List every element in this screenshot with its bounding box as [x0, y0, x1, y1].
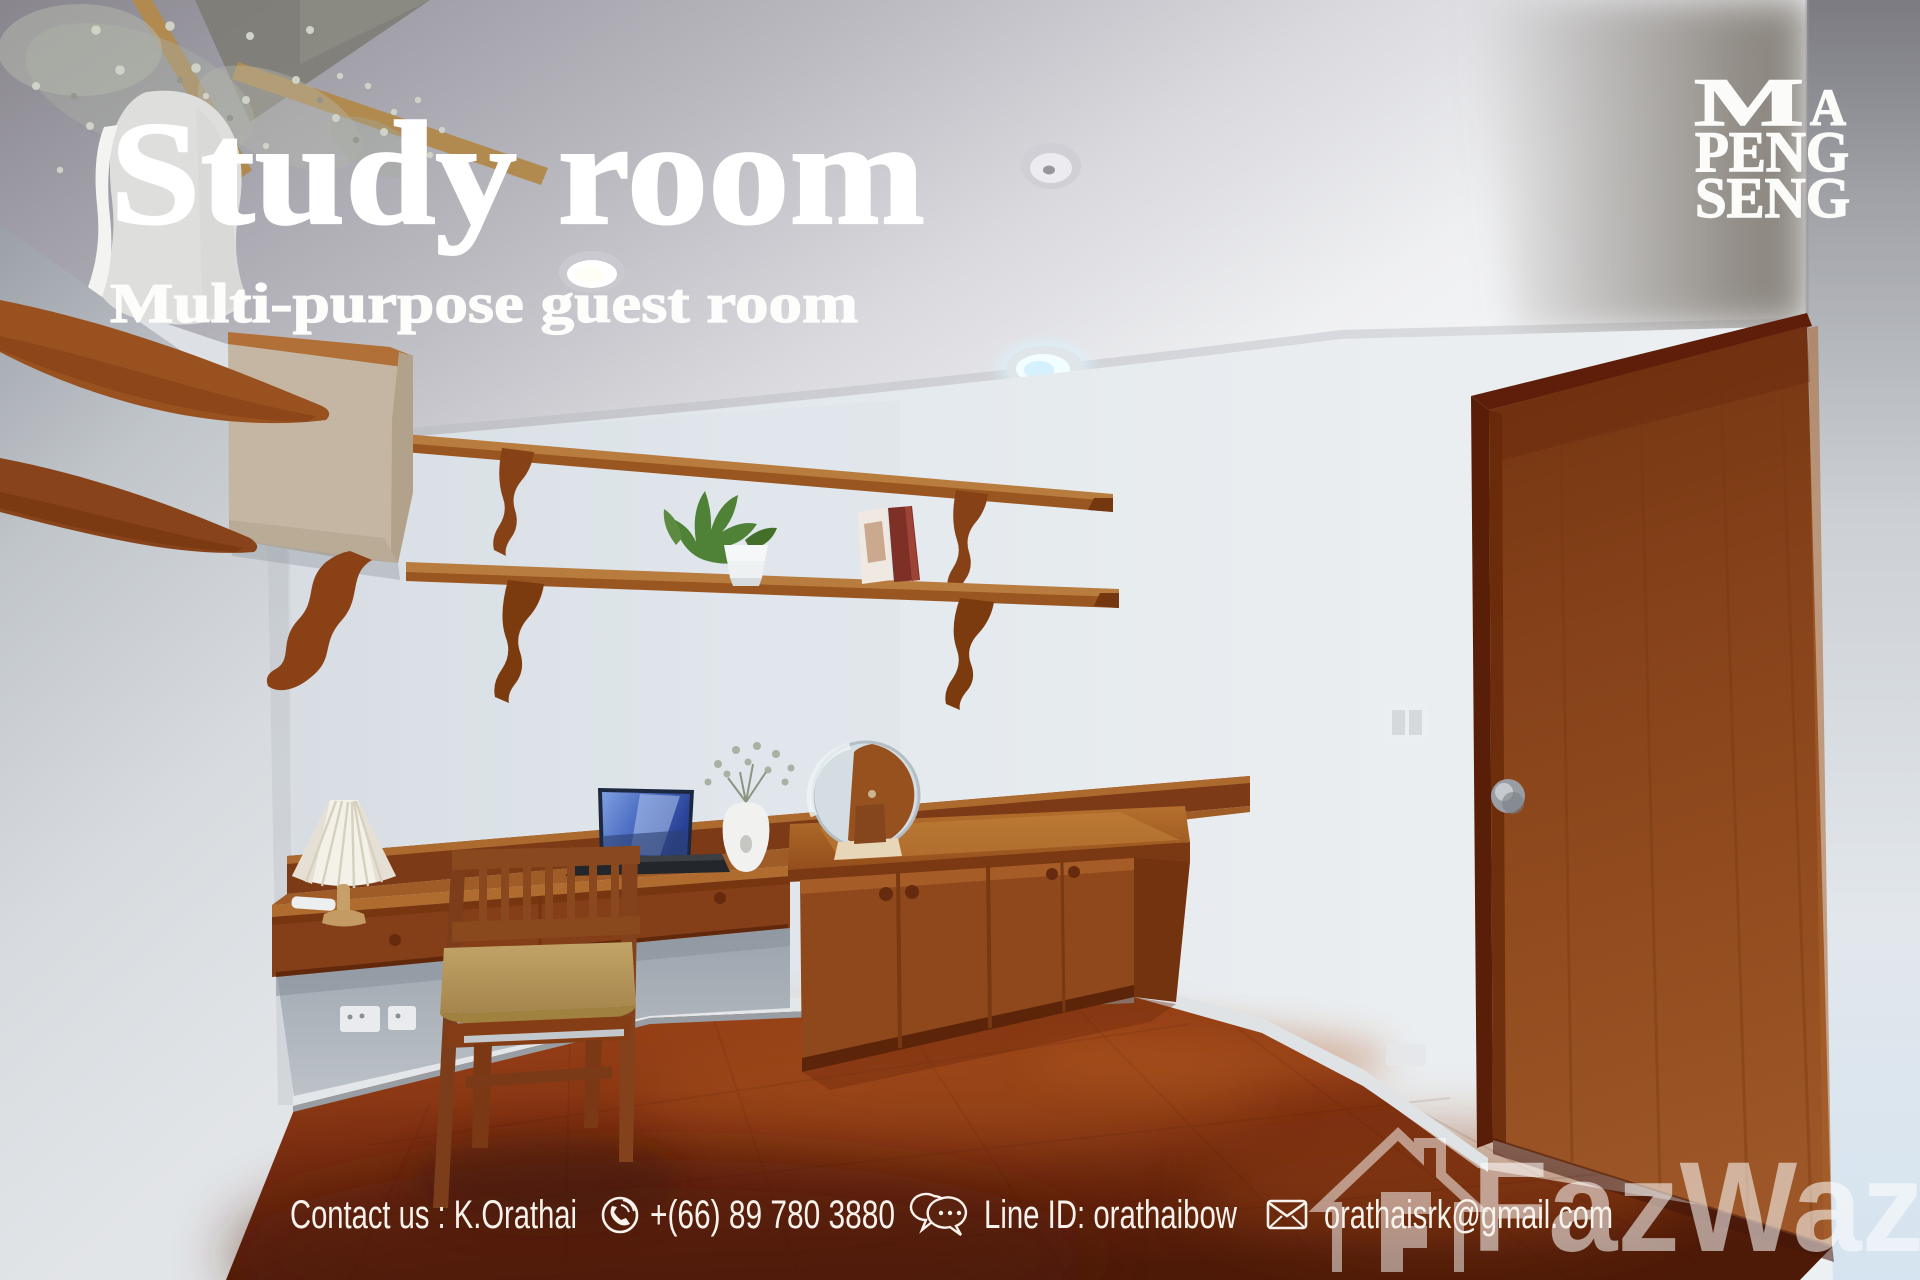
svg-text:SENG: SENG — [1695, 167, 1850, 230]
svg-text:Line ID: orathaibow: Line ID: orathaibow — [984, 1193, 1237, 1237]
svg-text:Contact us : K.Orathai: Contact us : K.Orathai — [290, 1193, 577, 1237]
svg-text:orathaisrk@gmail.com: orathaisrk@gmail.com — [1324, 1193, 1613, 1237]
svg-text:+(66) 89 780 3880: +(66) 89 780 3880 — [650, 1193, 895, 1237]
svg-text:Multi-purpose guest room: Multi-purpose guest room — [110, 273, 858, 335]
svg-text:Study room: Study room — [110, 92, 925, 256]
